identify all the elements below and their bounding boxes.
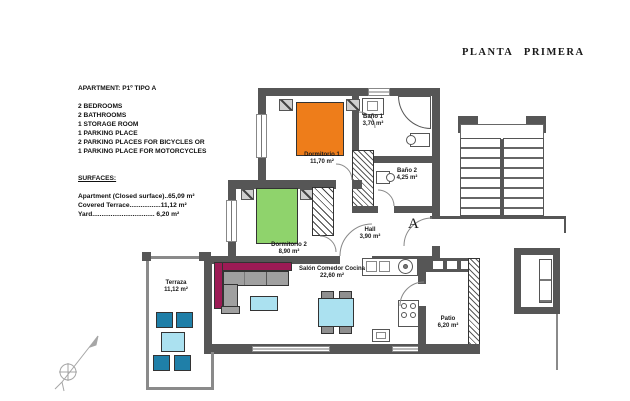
door-arc-bedroom2 [320, 236, 336, 252]
room-label-hall: Hall 3,90 m² [352, 227, 388, 241]
room-area: 8,90 m² [258, 249, 320, 256]
room-area: 11,70 m² [290, 159, 354, 166]
door-arc-bedroom1 [336, 164, 352, 180]
room-name: Dormitorio 2 [258, 242, 320, 249]
door-arc-bath2 [378, 190, 394, 206]
room-area: 3,70 m² [352, 121, 394, 128]
room-name: Terraza [150, 280, 202, 287]
room-area: 6,20 m² [428, 323, 468, 330]
room-name: Baño 2 [386, 168, 428, 175]
room-name: Hall [352, 227, 388, 234]
floor-plan-page: PLANTA PRIMERA APARTMENT: P1º TIPO A 2 B… [0, 0, 630, 401]
room-label-dormitorio2: Dormitorio 2 8,90 m² [258, 242, 320, 256]
room-name: Baño 1 [352, 114, 394, 121]
room-label-bano2: Baño 2 4,25 m² [386, 168, 428, 182]
room-area: 4,25 m² [386, 175, 428, 182]
room-name: Patio [428, 316, 468, 323]
room-area: 3,90 m² [352, 234, 388, 241]
unit-letter: A [408, 216, 419, 233]
door-arc-patio [400, 282, 424, 306]
room-name: Dormitorio 1 [290, 152, 354, 159]
room-area: 11,12 m² [150, 287, 202, 294]
plan-linework-overlay [0, 0, 630, 401]
room-name: Salón Comedor Cocina [294, 266, 370, 273]
room-label-terraza: Terraza 11,12 m² [150, 280, 202, 294]
room-area: 22,60 m² [294, 273, 370, 280]
north-arrow-icon [55, 336, 98, 391]
room-label-salon: Salón Comedor Cocina 22,60 m² [294, 266, 370, 280]
room-label-patio: Patio 6,20 m² [428, 316, 468, 330]
room-label-dormitorio1: Dormitorio 1 11,70 m² [290, 152, 354, 166]
room-label-bano1: Baño 1 3,70 m² [352, 114, 394, 128]
